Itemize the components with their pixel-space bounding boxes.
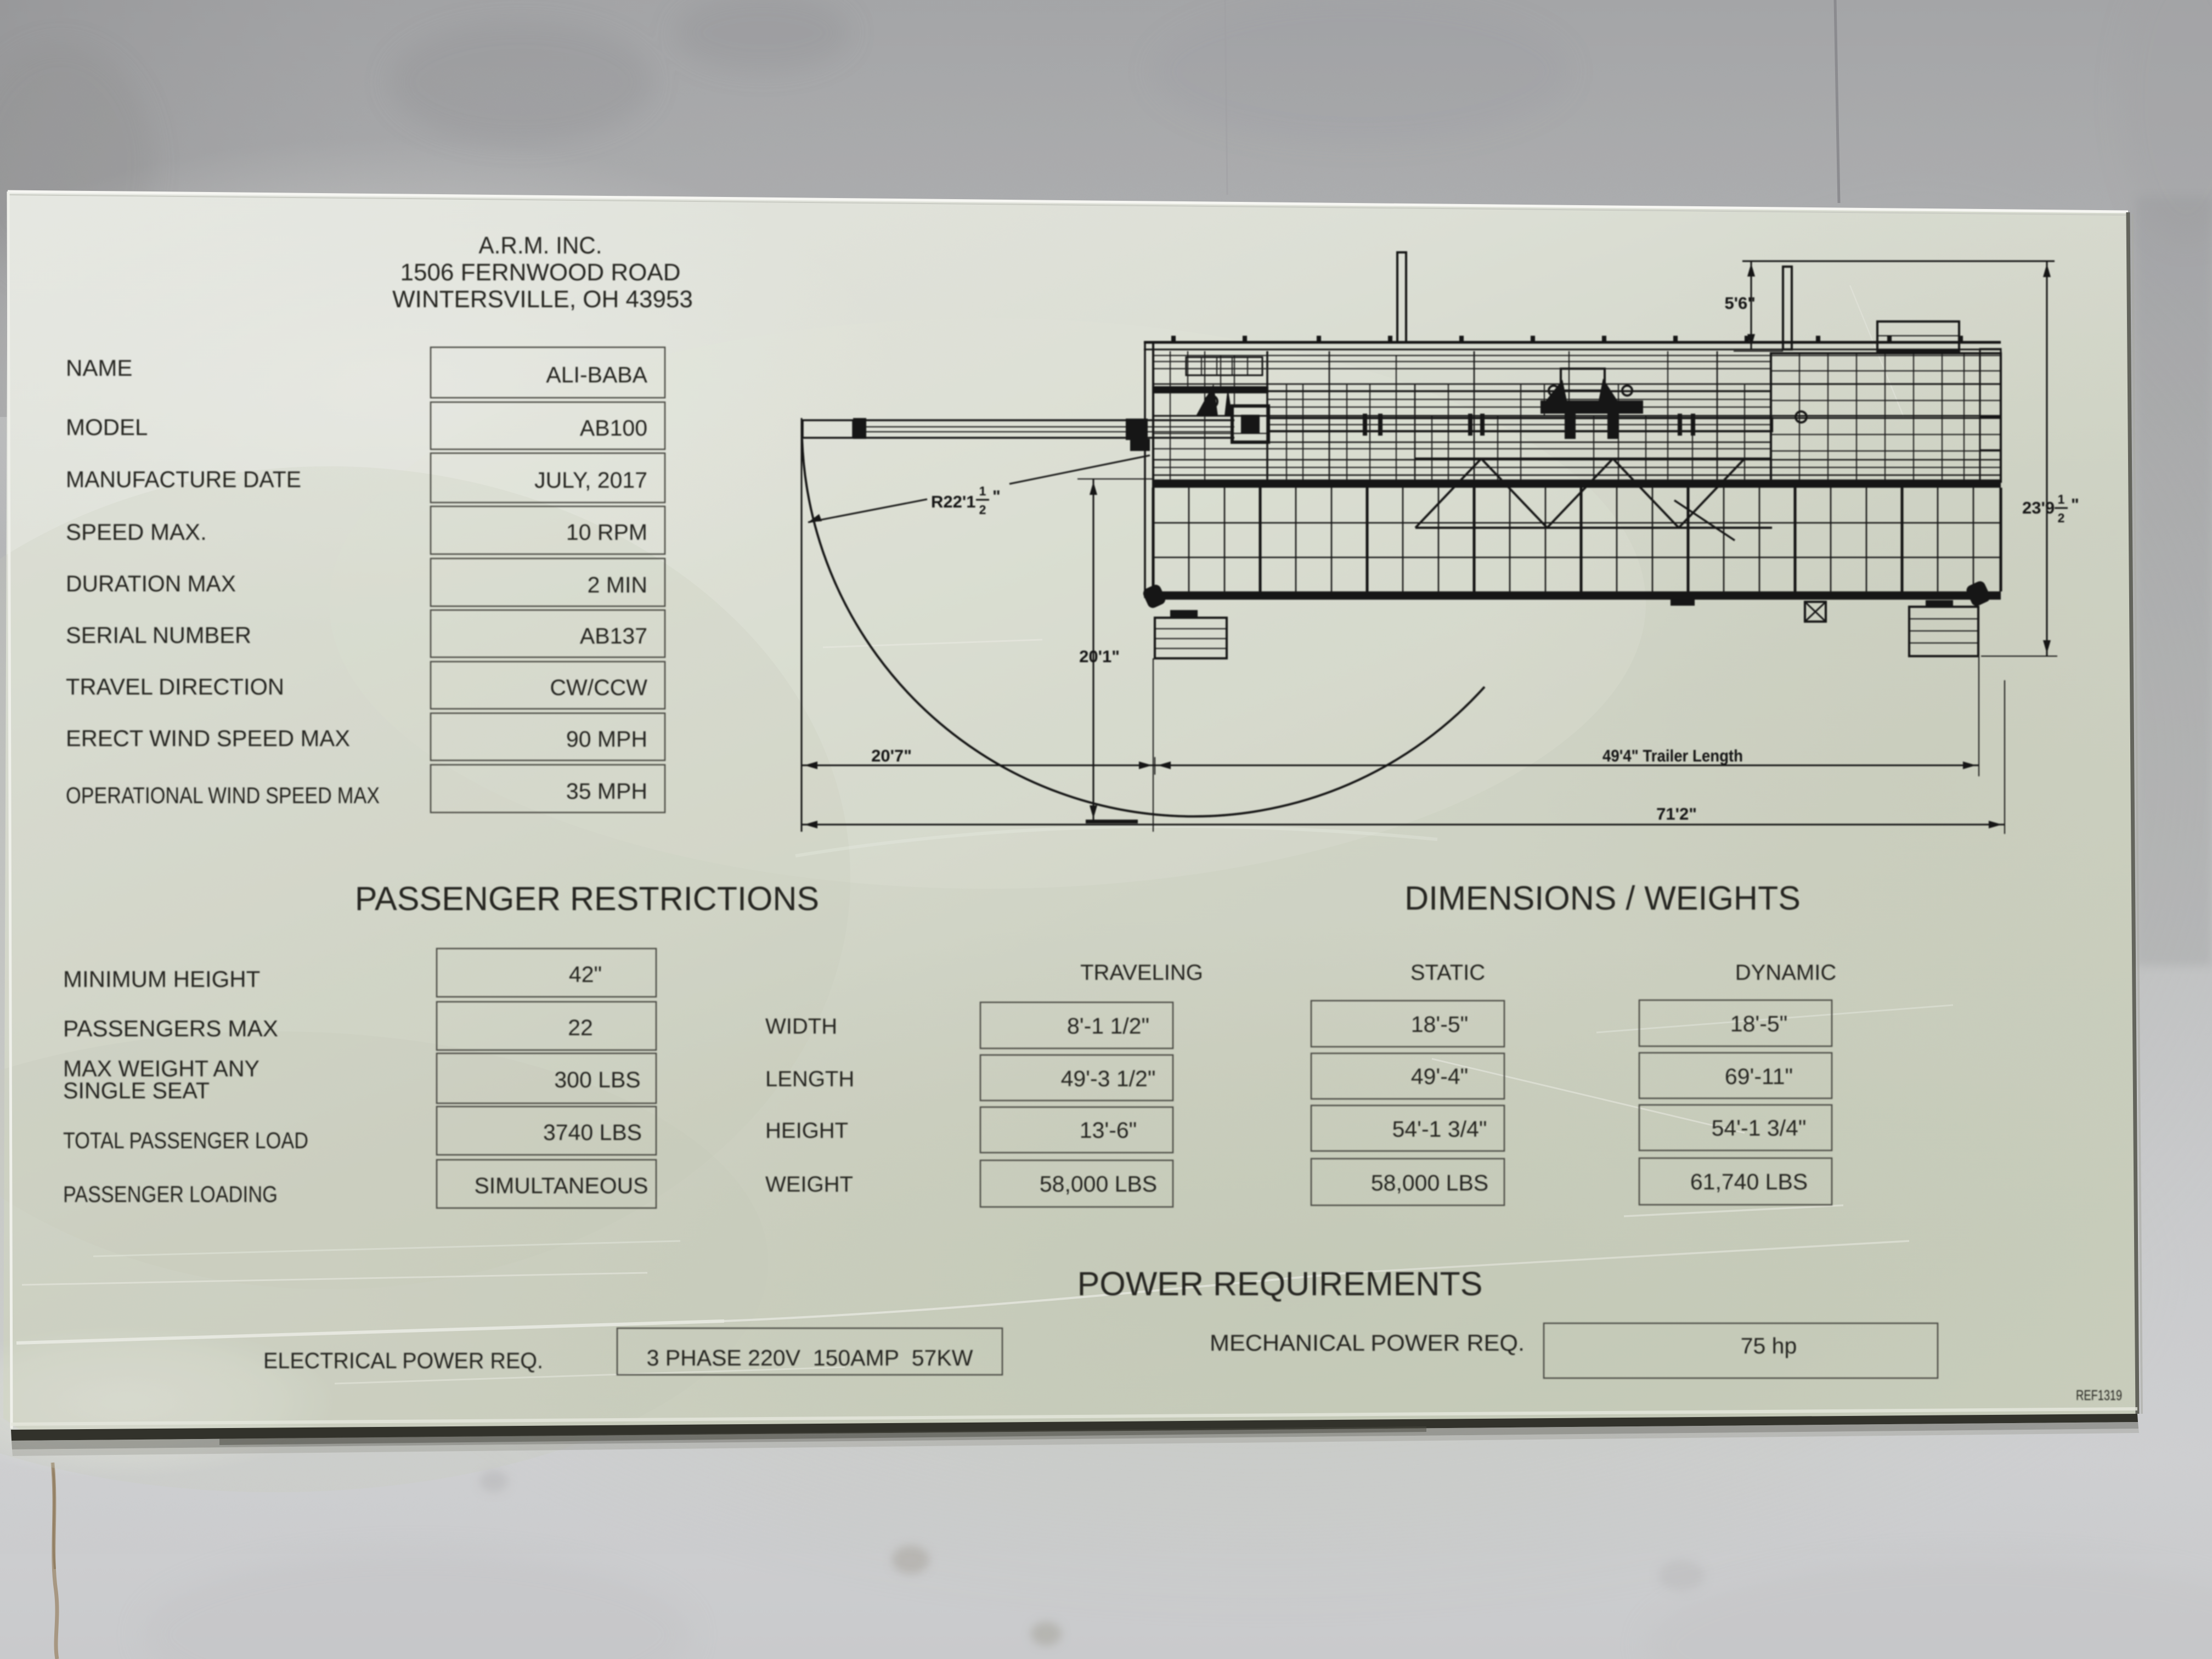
svg-text:AB137: AB137 [580,623,647,648]
svg-text:MINIMUM HEIGHT: MINIMUM HEIGHT [63,966,260,992]
svg-text:JULY, 2017: JULY, 2017 [534,467,647,493]
svg-text:LENGTH: LENGTH [765,1067,854,1091]
svg-text:20'1": 20'1" [1079,647,1120,666]
svg-text:49'-3 1/2": 49'-3 1/2" [1061,1066,1156,1091]
svg-text:ELECTRICAL POWER REQ.: ELECTRICAL POWER REQ. [263,1348,543,1373]
svg-text:NAME: NAME [66,355,132,381]
svg-text:WIDTH: WIDTH [765,1014,837,1039]
svg-text:HEIGHT: HEIGHT [765,1119,848,1143]
svg-text:49'4" Trailer Length: 49'4" Trailer Length [1602,746,1743,765]
svg-text:MODEL: MODEL [66,414,148,440]
svg-text:90 MPH: 90 MPH [566,726,647,752]
svg-text:POWER REQUIREMENTS: POWER REQUIREMENTS [1077,1265,1483,1302]
svg-text:5'6": 5'6" [1724,294,1756,313]
svg-text:WEIGHT: WEIGHT [765,1172,853,1197]
svg-text:TOTAL PASSENGER LOAD: TOTAL PASSENGER LOAD [63,1127,308,1153]
svg-text:DURATION MAX: DURATION MAX [66,571,236,596]
svg-text:ERECT WIND SPEED MAX: ERECT WIND SPEED MAX [66,725,350,751]
svg-text:1506 FERNWOOD ROAD: 1506 FERNWOOD ROAD [400,259,681,286]
svg-text:3 PHASE 220V 150AMP 57KW: 3 PHASE 220V 150AMP 57KW [647,1345,973,1370]
svg-text:13'-6": 13'-6" [1080,1118,1137,1143]
svg-text:OPERATIONAL WIND SPEED MAX: OPERATIONAL WIND SPEED MAX [66,782,380,808]
svg-text:AB100: AB100 [580,415,647,441]
svg-text:SINGLE SEAT: SINGLE SEAT [63,1077,210,1103]
svg-text:TRAVELING: TRAVELING [1080,961,1203,985]
svg-text:18'-5": 18'-5" [1730,1011,1787,1036]
svg-text:1: 1 [2058,492,2065,506]
svg-text:42": 42" [569,962,602,987]
svg-text:MANUFACTURE DATE: MANUFACTURE DATE [66,466,301,492]
svg-text:DIMENSIONS / WEIGHTS: DIMENSIONS / WEIGHTS [1404,879,1801,917]
svg-text:20'7": 20'7" [871,746,912,765]
svg-text:PASSENGERS MAX: PASSENGERS MAX [63,1015,278,1041]
svg-text:58,000 LBS: 58,000 LBS [1371,1170,1488,1195]
svg-text:REF1319: REF1319 [2076,1387,2122,1403]
svg-text:CW/CCW: CW/CCW [550,675,647,700]
svg-text:54'-1 3/4": 54'-1 3/4" [1712,1115,1807,1141]
svg-text:2: 2 [979,503,986,517]
svg-text:75 hp: 75 hp [1741,1333,1797,1358]
svg-text:WINTERSVILLE, OH 43953: WINTERSVILLE, OH 43953 [392,286,693,313]
svg-text:SERIAL NUMBER: SERIAL NUMBER [66,622,251,648]
svg-text:MECHANICAL POWER REQ.: MECHANICAL POWER REQ. [1210,1330,1525,1356]
svg-text:PASSENGER LOADING: PASSENGER LOADING [63,1181,278,1207]
svg-text:STATIC: STATIC [1410,961,1485,985]
svg-text:TRAVEL DIRECTION: TRAVEL DIRECTION [66,674,284,699]
svg-text:2: 2 [2058,511,2065,525]
svg-text:18'-5": 18'-5" [1411,1012,1468,1037]
svg-text:3740 LBS: 3740 LBS [543,1120,642,1145]
svg-text:23'9: 23'9 [2022,498,2055,517]
svg-text:54'-1 3/4": 54'-1 3/4" [1392,1116,1487,1142]
svg-text:PASSENGER RESTRICTIONS: PASSENGER RESTRICTIONS [355,880,819,917]
svg-text:22: 22 [568,1015,593,1040]
svg-text:A.R.M. INC.: A.R.M. INC. [479,232,602,259]
svg-text:10 RPM: 10 RPM [566,520,647,545]
svg-text:ALI-BABA: ALI-BABA [546,362,647,387]
svg-text:DYNAMIC: DYNAMIC [1735,961,1836,985]
svg-text:R22'1: R22'1 [931,492,975,511]
svg-text:SPEED MAX.: SPEED MAX. [66,519,207,545]
svg-text:71'2": 71'2" [1656,804,1697,823]
svg-text:1: 1 [979,484,986,498]
svg-text:49'-4": 49'-4" [1411,1064,1468,1089]
svg-text:300 LBS: 300 LBS [554,1067,640,1092]
svg-text:": " [992,487,1001,506]
svg-text:35 MPH: 35 MPH [566,778,647,804]
svg-text:SIMULTANEOUS: SIMULTANEOUS [475,1173,648,1198]
svg-text:2 MIN: 2 MIN [588,572,647,597]
svg-text:61,740 LBS: 61,740 LBS [1690,1169,1808,1194]
svg-text:8'-1 1/2": 8'-1 1/2" [1067,1013,1149,1039]
svg-text:69'-11": 69'-11" [1725,1064,1793,1089]
svg-text:58,000 LBS: 58,000 LBS [1040,1171,1157,1197]
svg-text:": " [2071,495,2079,514]
